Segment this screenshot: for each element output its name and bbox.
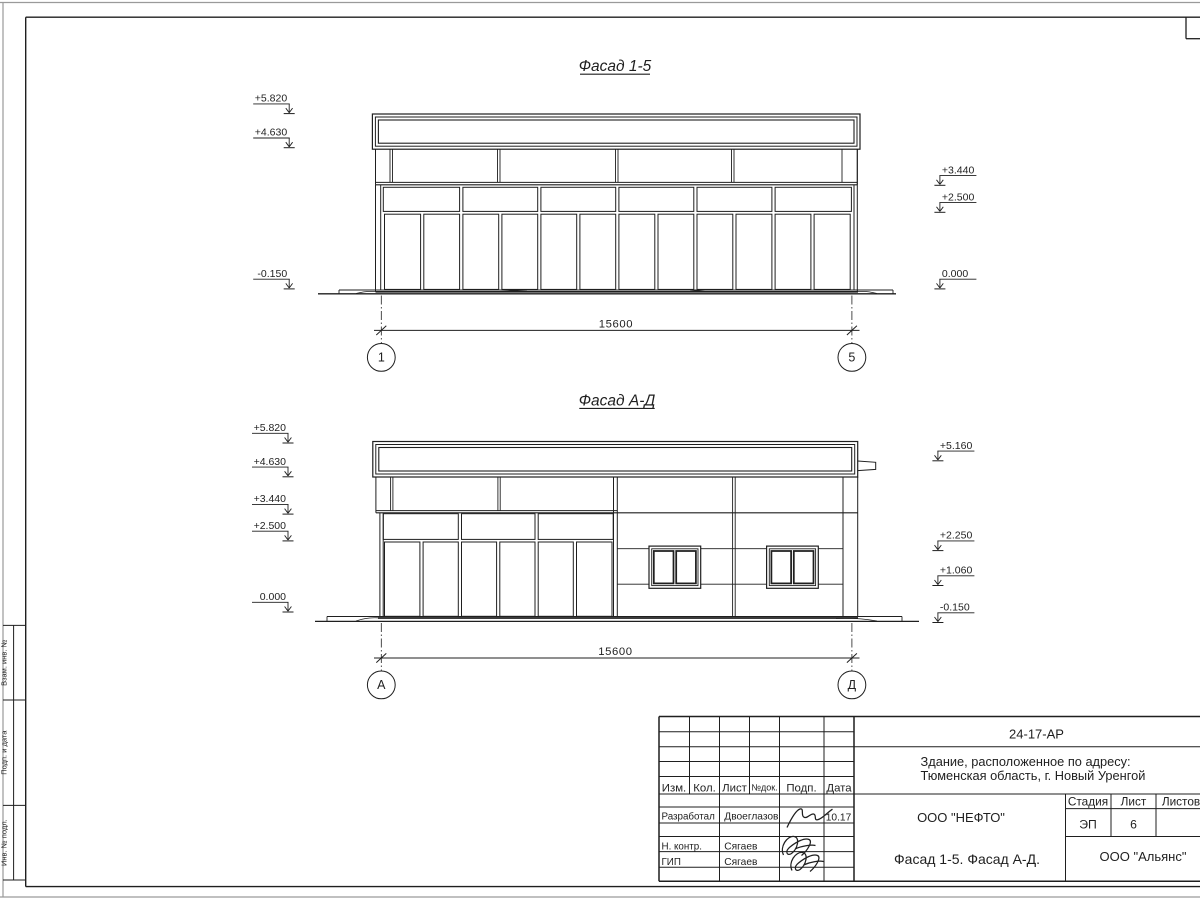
svg-text:+4.630: +4.630	[254, 456, 287, 468]
svg-text:Сягаев: Сягаев	[724, 841, 757, 852]
svg-text:Фасад 1-5: Фасад 1-5	[579, 58, 652, 75]
svg-text:+5.820: +5.820	[255, 93, 288, 105]
svg-text:+3.440: +3.440	[254, 493, 287, 505]
svg-text:Лист: Лист	[722, 782, 748, 794]
svg-text:+2.250: +2.250	[940, 530, 973, 542]
svg-text:6: 6	[1130, 818, 1137, 832]
svg-text:Фасад 1-5. Фасад А-Д.: Фасад 1-5. Фасад А-Д.	[894, 851, 1040, 867]
svg-text:1: 1	[378, 351, 385, 365]
svg-text:А: А	[377, 678, 386, 692]
svg-text:+4.630: +4.630	[255, 127, 288, 139]
svg-text:Тюменская область, г. Новый Ур: Тюменская область, г. Новый Уренгой	[921, 768, 1146, 783]
svg-text:Разработал: Разработал	[662, 811, 716, 822]
svg-text:Листов: Листов	[1162, 795, 1200, 809]
svg-text:0.000: 0.000	[260, 591, 286, 603]
svg-text:+5.820: +5.820	[254, 422, 287, 434]
svg-text:Подп. и дата: Подп. и дата	[0, 730, 9, 775]
svg-text:Подп.: Подп.	[786, 782, 816, 794]
svg-text:Взам. инв. №: Взам. инв. №	[0, 639, 9, 685]
svg-text:Фасад А-Д: Фасад А-Д	[579, 393, 656, 410]
svg-text:Инв. № подл.: Инв. № подл.	[0, 819, 9, 866]
svg-text:+2.500: +2.500	[254, 520, 287, 532]
svg-text:Лист: Лист	[1121, 795, 1147, 809]
svg-text:Сягаев: Сягаев	[724, 857, 757, 868]
svg-text:ГИП: ГИП	[662, 857, 681, 868]
svg-text:+5.160: +5.160	[940, 440, 973, 452]
svg-text:Двоеглазов: Двоеглазов	[724, 811, 778, 822]
svg-text:-0.150: -0.150	[940, 602, 970, 614]
svg-text:15600: 15600	[599, 318, 633, 330]
svg-text:Здание, расположенное по адрес: Здание, расположенное по адресу:	[921, 754, 1131, 769]
svg-text:+3.440: +3.440	[942, 164, 975, 176]
svg-text:10.17: 10.17	[826, 812, 852, 823]
svg-text:Стадия: Стадия	[1068, 795, 1108, 809]
svg-text:ЭП: ЭП	[1079, 818, 1097, 832]
svg-text:Кол.: Кол.	[693, 782, 716, 794]
svg-text:Д: Д	[848, 678, 857, 692]
svg-text:15600: 15600	[598, 646, 632, 658]
svg-text:Дата: Дата	[826, 782, 852, 794]
svg-text:Изм.: Изм.	[662, 782, 686, 794]
svg-text:ООО "Альянс": ООО "Альянс"	[1100, 849, 1187, 864]
svg-text:24-17-АР: 24-17-АР	[1009, 727, 1064, 742]
svg-text:+1.060: +1.060	[940, 565, 973, 577]
svg-text:Н. контр.: Н. контр.	[662, 842, 702, 853]
svg-text:+2.500: +2.500	[942, 191, 975, 203]
svg-text:№док.: №док.	[751, 783, 777, 793]
svg-text:-0.150: -0.150	[257, 268, 287, 280]
svg-text:0.000: 0.000	[942, 268, 968, 280]
svg-text:ООО "НЕФТО": ООО "НЕФТО"	[917, 810, 1005, 825]
svg-text:5: 5	[848, 351, 855, 365]
